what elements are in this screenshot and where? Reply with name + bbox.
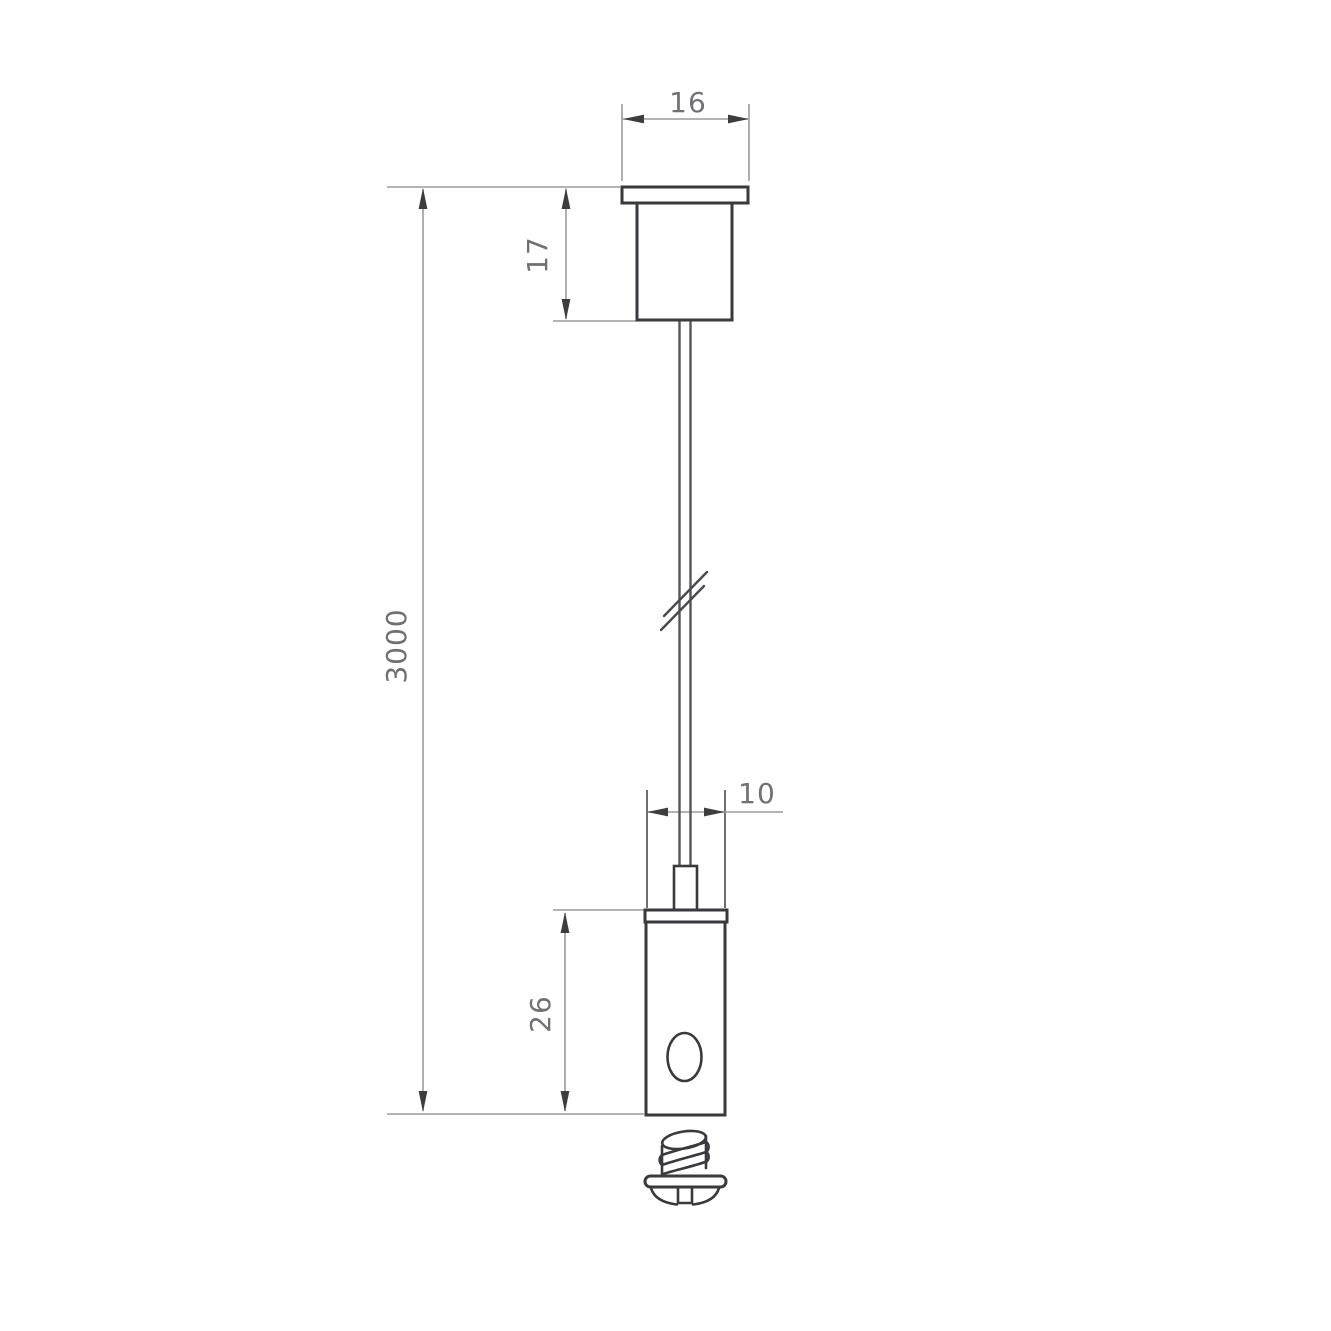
cable-holder bbox=[645, 866, 727, 1115]
head-dome-right bbox=[693, 1188, 719, 1205]
head-dome-left bbox=[651, 1188, 677, 1205]
dim-10-arrow-right-icon bbox=[704, 808, 725, 817]
dim-10: 10 bbox=[647, 777, 783, 908]
dim-17-arrow-up-icon bbox=[562, 188, 571, 209]
dim-16: 16 bbox=[622, 86, 749, 181]
break-stroke-upper bbox=[664, 572, 707, 616]
dim-16-label: 16 bbox=[669, 86, 707, 119]
screw bbox=[645, 1128, 726, 1204]
dim-3000-arrow-up-icon bbox=[419, 188, 428, 209]
suspension-cable bbox=[661, 321, 707, 866]
dim-16-arrow-left-icon bbox=[623, 115, 644, 124]
technical-drawing-canvas: 16 17 3000 26 10 bbox=[0, 0, 1331, 1331]
canopy-body bbox=[637, 203, 732, 320]
dim-3000: 3000 bbox=[380, 188, 644, 1114]
dim-3000-label: 3000 bbox=[380, 608, 413, 683]
break-stroke-lower bbox=[661, 586, 704, 630]
screw-threads bbox=[660, 1128, 709, 1176]
screw-head bbox=[651, 1188, 719, 1205]
screw-slot bbox=[678, 1188, 692, 1203]
dim-26-arrow-up-icon bbox=[561, 912, 570, 933]
canopy-flange bbox=[622, 187, 748, 203]
dim-17-arrow-down-icon bbox=[562, 299, 571, 320]
dim-26: 26 bbox=[524, 910, 644, 1112]
dim-17-label: 17 bbox=[521, 236, 554, 274]
ceiling-canopy bbox=[622, 187, 748, 320]
dim-16-arrow-right-icon bbox=[728, 115, 749, 124]
dim-26-arrow-down-icon bbox=[561, 1091, 570, 1112]
cable-gland bbox=[674, 866, 697, 910]
dim-26-label: 26 bbox=[524, 995, 557, 1033]
cable-break-mark bbox=[661, 572, 707, 630]
dim-3000-arrow-down-icon bbox=[419, 1091, 428, 1112]
holder-body bbox=[646, 922, 725, 1115]
holder-screw-hole bbox=[668, 1033, 702, 1081]
screw-washer bbox=[645, 1176, 726, 1187]
dim-10-label: 10 bbox=[738, 777, 776, 810]
holder-top-plate bbox=[645, 910, 727, 922]
dim-10-arrow-left-icon bbox=[647, 808, 668, 817]
